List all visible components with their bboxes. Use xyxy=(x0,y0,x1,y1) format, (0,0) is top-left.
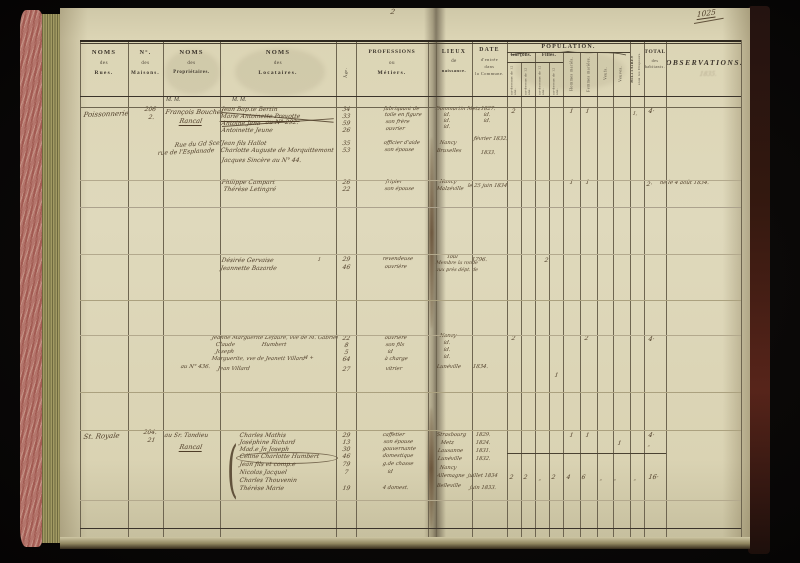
table-column-rule xyxy=(428,40,429,537)
handwritten-text: Nancy xyxy=(439,180,457,185)
handwritten-text: son épouse xyxy=(384,187,414,192)
col-header-professions-sub2: Métiers. xyxy=(356,71,428,77)
handwritten-text: 2· xyxy=(646,182,653,188)
handwritten-text: son épouse xyxy=(383,440,413,445)
handwritten-text: 1 xyxy=(569,180,574,186)
handwritten-text: juin 1833. xyxy=(469,486,496,491)
table-row-rule xyxy=(507,62,563,63)
handwritten-text: Toul xyxy=(446,255,458,260)
col-header-no-maisons-sub: des xyxy=(128,61,163,66)
handwritten-text: g.de chasse xyxy=(382,462,414,467)
col-header-proprietaires-sub2: Propriétaires. xyxy=(163,71,220,76)
handwritten-text: Jacques Sincère au N° 44. xyxy=(221,158,302,164)
subcol-garcons-high: au-dessus de 12 ans. xyxy=(522,63,534,95)
handwritten-text: 1 xyxy=(554,373,559,379)
handwritten-text: 6 xyxy=(581,475,586,481)
handwritten-text: 1 xyxy=(569,433,574,439)
grouping-brace: ( xyxy=(227,432,238,505)
handwritten-text: 64 xyxy=(342,357,351,363)
handwritten-text: son frère xyxy=(385,120,410,125)
subcol-header-garcons: Garçons. xyxy=(507,54,535,59)
col-header-date-sub3: la Commune. xyxy=(472,72,507,76)
col-header-date-sub: d'entrée xyxy=(472,58,507,62)
handwritten-text: 4 domest. xyxy=(382,486,409,491)
handwritten-text: Jean Villard xyxy=(217,367,250,372)
handwritten-text: domestique xyxy=(382,454,413,459)
subcol-hommes-maries: Hommes mariés. xyxy=(564,54,579,94)
subcol-filles-low: au-dessous de 12 ans. xyxy=(536,63,548,95)
handwritten-text: 4· xyxy=(648,432,655,439)
handwritten-text: 1 xyxy=(617,441,622,447)
handwritten-text: 2 xyxy=(509,475,514,481)
table-column-rule xyxy=(630,40,631,537)
handwritten-text: id. xyxy=(443,125,451,130)
handwritten-text: 206 xyxy=(144,107,157,113)
handwritten-text: 1 xyxy=(585,180,590,186)
handwritten-text: 26 xyxy=(342,128,351,134)
handwritten-text: Nicolas Jacquel xyxy=(239,470,287,476)
handwritten-text: id. xyxy=(483,119,491,124)
table-column-rule xyxy=(563,52,564,537)
handwritten-text: „ xyxy=(647,443,650,448)
handwritten-text: 16· xyxy=(648,474,659,481)
page-number-mark: 2 xyxy=(390,9,396,16)
handwritten-text: Joseph xyxy=(215,350,234,355)
handwritten-text: Nancy xyxy=(439,466,457,471)
handwritten-text: Charles Thouvenin xyxy=(239,478,297,484)
handwritten-text: son épouse xyxy=(384,148,414,153)
handwritten-text: Jeanne Marguerite Lefaure, vve de M. Gab… xyxy=(211,336,338,341)
handwritten-text: id. xyxy=(443,341,451,346)
col-header-total: TOTAL xyxy=(644,50,666,56)
col-header-noms-rues-sub2: Rues. xyxy=(80,71,128,77)
handwritten-text: 27 xyxy=(342,367,351,373)
table-column-rule xyxy=(80,40,81,537)
table-column-rule xyxy=(128,40,129,537)
subcol-veuves: Veuves. xyxy=(614,54,627,94)
table-column-rule xyxy=(535,52,536,537)
handwritten-text: Malzéville xyxy=(436,187,464,192)
handwritten-text: caffetier xyxy=(382,433,405,438)
table-column-rule xyxy=(163,40,164,537)
printed-mm-proprietaires: M. M. xyxy=(166,97,181,103)
handwritten-text: fripier xyxy=(385,180,403,185)
table-column-rule xyxy=(436,40,437,537)
col-header-age: Âge. xyxy=(338,54,354,92)
handwritten-text: au N° 436. xyxy=(180,365,210,370)
handwritten-text: id xyxy=(387,350,393,355)
col-header-professions: PROFESSIONS xyxy=(356,50,428,56)
printed-mm-locataires: M. M. xyxy=(232,97,247,103)
table-row-rule xyxy=(80,180,741,181)
subcol-filles-high: au-dessus de 12 ans. xyxy=(550,63,562,95)
handwritten-text: 1 xyxy=(317,258,321,263)
handwritten-text: 29 xyxy=(342,257,351,263)
col-header-proprietaires-sub: des xyxy=(163,61,220,66)
handwritten-text: St. Royale xyxy=(83,433,120,441)
table-row-rule xyxy=(80,500,741,501)
table-column-rule xyxy=(597,52,598,537)
subcol-veufs: Veufs. xyxy=(599,54,612,94)
handwritten-text: 2 xyxy=(584,336,589,342)
table-row-rule xyxy=(80,40,741,42)
handwritten-text: 2. xyxy=(148,115,155,121)
handwritten-text: 4 + xyxy=(304,356,314,361)
table-row-rule xyxy=(80,43,741,44)
table-column-rule xyxy=(666,40,667,537)
subcol-header-filles: Filles. xyxy=(535,54,563,59)
col-header-professions-sub: ou xyxy=(356,61,428,66)
handwritten-text: 1 xyxy=(569,109,574,115)
handwritten-text: au N° 292. xyxy=(265,120,299,126)
handwritten-text: officier d'aide xyxy=(383,141,420,146)
handwritten-text: 1824. xyxy=(475,441,491,446)
folio-number: 1025 xyxy=(697,8,716,20)
handwritten-text: Claude xyxy=(215,343,235,348)
col-header-total-sub: des xyxy=(644,59,666,63)
col-header-no-maisons-sub2: Maisons. xyxy=(128,71,163,76)
handwritten-text: 7 xyxy=(344,470,349,476)
handwritten-text: revendeuse xyxy=(382,257,413,262)
handwritten-text: vitrier xyxy=(385,367,402,372)
handwritten-text: Thérèse Marie xyxy=(239,486,284,492)
handwritten-text: Jeannette Bazarde xyxy=(220,266,277,272)
handwritten-text: février 1832. xyxy=(473,137,508,142)
handwritten-text: Humbert xyxy=(261,343,287,348)
table-row-rule xyxy=(80,528,741,529)
handwritten-text: 46 xyxy=(342,454,351,460)
table-column-rule xyxy=(220,40,221,537)
col-header-observations: OBSERVATIONS. xyxy=(666,58,741,67)
handwritten-text: 4· xyxy=(648,108,655,115)
handwritten-text: 22 xyxy=(342,187,351,193)
handwritten-text: Céline Charlotte Humbert xyxy=(239,454,320,460)
table-row-rule xyxy=(80,96,741,97)
handwritten-text: le 25 juin 1834. xyxy=(467,184,509,189)
handwritten-text: 1832. xyxy=(475,457,491,462)
handwritten-text: 53 xyxy=(342,148,351,154)
handwritten-text: Poissonnerie xyxy=(83,110,129,119)
handwritten-text: Antoinette Jeune xyxy=(221,128,273,134)
table-column-rule xyxy=(356,40,357,537)
handwritten-text: 4 xyxy=(566,475,571,481)
table-row-rule xyxy=(80,392,741,393)
col-header-militaires-sub: sous les Drapeaux. xyxy=(636,44,643,94)
handwritten-text: Belleville xyxy=(436,484,461,489)
handwritten-text: rue de l'Esplanade xyxy=(157,148,214,157)
handwritten-text: son fils xyxy=(385,343,404,348)
table-column-rule xyxy=(336,40,337,537)
handwritten-text: 1829. xyxy=(475,433,491,438)
handwritten-text: ouvrière xyxy=(384,336,407,341)
table-row-rule xyxy=(80,207,741,208)
handwritten-text: 19 xyxy=(342,486,351,492)
handwritten-text: Marguerite, vve de Jeanett Villard xyxy=(211,357,305,362)
handwritten-text: Thérèse Letingré xyxy=(223,187,276,193)
handwritten-text: toile en figure xyxy=(384,113,422,118)
col-header-lieux-sub: de xyxy=(436,60,472,65)
handwritten-text: Lunéville xyxy=(436,365,461,370)
handwritten-text: 1 xyxy=(585,109,590,115)
handwritten-text: 1, xyxy=(632,112,638,117)
table-row-rule xyxy=(80,335,741,336)
handwritten-text: „ xyxy=(599,477,602,482)
table-column-rule xyxy=(741,40,742,537)
handwritten-text: 1796. xyxy=(471,258,487,263)
subcol-garcons-low: au-dessous de 12 ans. xyxy=(508,63,520,95)
handwritten-text: Jean fils et comp.e xyxy=(239,462,296,468)
handwritten-text: 1831. xyxy=(475,449,491,454)
handwritten-text: ouvrière xyxy=(384,265,407,270)
table-column-rule xyxy=(613,52,614,537)
col-header-locataires-sub2: Locataires. xyxy=(220,71,336,77)
handwritten-text: 2 xyxy=(551,475,556,481)
col-header-total-sub2: habitants. xyxy=(644,65,666,69)
col-header-proprietaires: NOMS xyxy=(163,50,220,57)
handwritten-text: Nancy xyxy=(439,141,457,146)
handwritten-text: 79 xyxy=(342,462,351,468)
handwritten-text: gouvernante xyxy=(382,447,416,452)
table-column-rule xyxy=(507,40,508,537)
handwritten-text: Lunéville xyxy=(437,457,462,462)
handwritten-text: Metz xyxy=(440,441,454,446)
handwritten-text: 1 xyxy=(585,433,590,439)
handwritten-text: Allemagne xyxy=(436,474,465,479)
handwritten-text: „ xyxy=(538,477,541,482)
handwritten-text: 4· xyxy=(648,336,655,343)
table-row-rule xyxy=(80,430,741,431)
handwritten-text: Rancal xyxy=(179,118,203,126)
handwritten-text: Strasbourg xyxy=(436,433,466,438)
table-row-rule xyxy=(80,107,741,108)
handwritten-text: 1835. xyxy=(699,72,717,78)
handwritten-text: 2 xyxy=(523,475,528,481)
handwritten-text: 1833. xyxy=(480,151,496,156)
handwritten-text: 1834. xyxy=(472,365,488,370)
handwritten-text: Bruxelles xyxy=(436,149,462,154)
handwritten-text: id. xyxy=(443,355,451,360)
table-row-rule xyxy=(507,453,666,454)
col-header-noms-rues: NOMS xyxy=(80,50,128,57)
col-header-lieux-sub2: naissance. xyxy=(436,69,472,74)
subcol-femmes-mariees: Femmes mariées. xyxy=(581,54,596,94)
col-header-no-maisons: N°. xyxy=(128,50,163,56)
handwritten-text: „ xyxy=(633,477,636,482)
handwritten-text: Lausanne xyxy=(437,449,463,454)
handwritten-text: François Bouchel xyxy=(165,109,223,116)
handwritten-text: Dommartin Metz xyxy=(435,107,481,112)
table-column-rule xyxy=(644,40,645,537)
handwritten-text: au Sr. Tandieu xyxy=(164,433,209,439)
handwritten-text: ouvrier xyxy=(385,127,405,132)
handwritten-text: 2 xyxy=(511,336,516,342)
col-header-lieux: LIEUX xyxy=(436,50,472,56)
handwritten-text: id. xyxy=(443,348,451,353)
col-header-noms-rues-sub: des xyxy=(80,61,128,66)
col-header-date-sub2: dans xyxy=(472,65,507,69)
handwritten-text: 46 xyxy=(342,265,351,271)
table-row-rule xyxy=(507,52,630,53)
handwritten-text: 204. xyxy=(143,430,157,436)
col-header-locataires-sub: des xyxy=(220,61,336,66)
table-column-rule xyxy=(580,52,581,537)
handwritten-text: Désirée Gervaise xyxy=(221,258,274,264)
col-header-locataires: NOMS xyxy=(220,50,336,57)
handwritten-text: Rancal xyxy=(179,444,203,452)
handwritten-text: 2 xyxy=(511,109,516,115)
ledger-table: NOMS des Rues. N°. des Maisons. NOMS des… xyxy=(0,0,800,563)
col-header-date: DATE xyxy=(472,48,507,54)
handwritten-text: id xyxy=(387,470,393,475)
handwritten-text: Charlotte Auguste de Morquittemont xyxy=(220,148,334,154)
table-row-rule xyxy=(80,300,741,301)
table-column-rule xyxy=(472,40,473,537)
table-row-rule xyxy=(80,254,741,255)
handwritten-text: à charge xyxy=(384,357,408,362)
photo-background: NOMS des Rues. N°. des Maisons. NOMS des… xyxy=(0,0,800,563)
handwritten-text: 21 xyxy=(147,438,156,444)
